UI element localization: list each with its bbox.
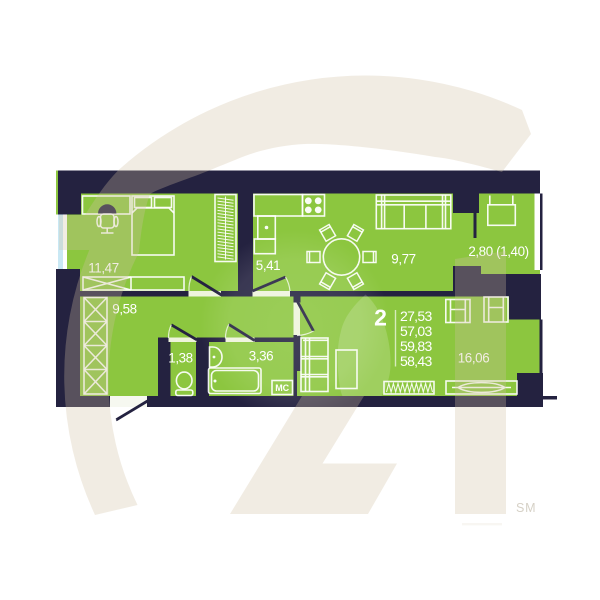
svg-text:57,03: 57,03 [400,323,432,339]
svg-text:1,38: 1,38 [168,351,192,366]
svg-text:SM: SM [516,501,536,515]
svg-text:27,53: 27,53 [400,308,432,324]
svg-text:9,77: 9,77 [391,252,415,267]
svg-text:59,83: 59,83 [400,338,432,354]
svg-text:58,43: 58,43 [400,353,432,369]
